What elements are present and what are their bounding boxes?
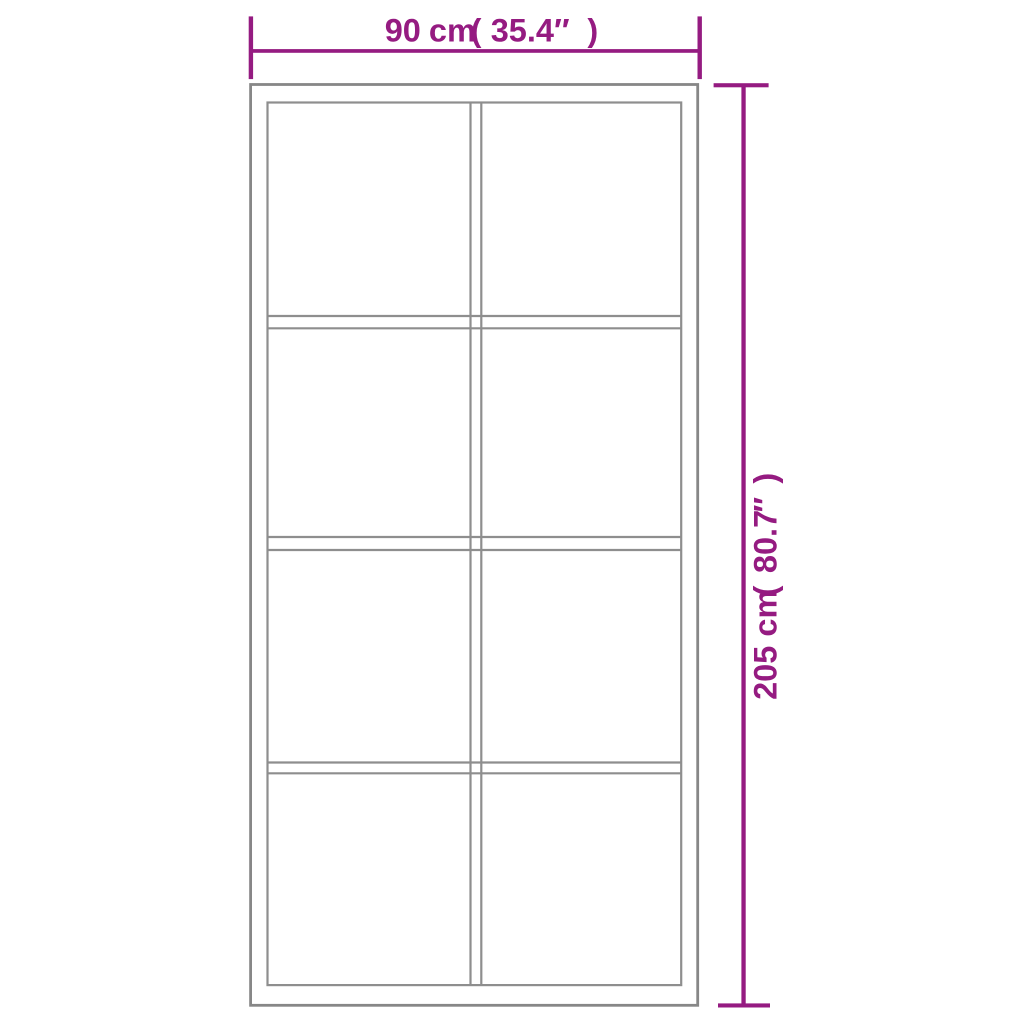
svg-text:): )	[747, 473, 783, 484]
svg-text:90: 90	[385, 12, 421, 48]
svg-text:(: (	[747, 585, 783, 596]
svg-text:): )	[587, 12, 598, 48]
svg-text:cm: cm	[429, 12, 476, 48]
svg-text:(: (	[471, 12, 482, 48]
svg-text:35.4″: 35.4″	[491, 12, 570, 48]
svg-text:80.7: 80.7	[747, 510, 783, 573]
svg-text:205: 205	[747, 646, 783, 700]
svg-text:″: ″	[747, 497, 783, 513]
